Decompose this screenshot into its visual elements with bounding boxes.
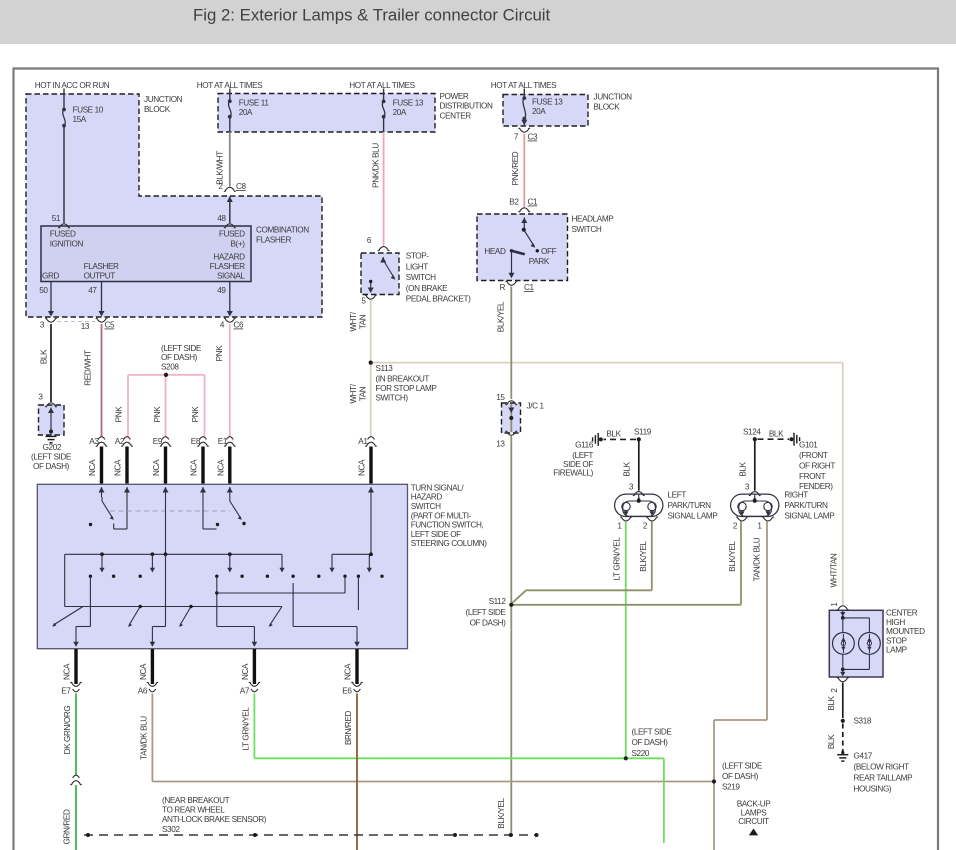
svg-text:PNK: PNK bbox=[115, 406, 124, 423]
svg-text:(IN BREAKOUT: (IN BREAKOUT bbox=[376, 375, 430, 384]
svg-text:15A: 15A bbox=[73, 115, 87, 124]
svg-text:FIREWALL): FIREWALL) bbox=[553, 469, 593, 478]
svg-text:7: 7 bbox=[514, 133, 519, 142]
svg-text:FUSED: FUSED bbox=[219, 230, 245, 239]
svg-text:(LEFT SIDE: (LEFT SIDE bbox=[161, 344, 202, 353]
svg-text:LAMP: LAMP bbox=[886, 646, 908, 655]
svg-text:C1: C1 bbox=[524, 283, 535, 292]
svg-text:OF DASH): OF DASH) bbox=[161, 353, 198, 362]
svg-text:WHT/: WHT/ bbox=[349, 311, 358, 331]
svg-text:OF DASH): OF DASH) bbox=[470, 618, 507, 627]
svg-text:A7: A7 bbox=[240, 687, 250, 696]
svg-text:PARK: PARK bbox=[529, 257, 550, 266]
svg-text:SIGNAL LAMP: SIGNAL LAMP bbox=[784, 512, 835, 521]
svg-text:51: 51 bbox=[52, 214, 61, 223]
svg-text:FLASHER: FLASHER bbox=[210, 262, 245, 271]
svg-text:FOR STOP LAMP: FOR STOP LAMP bbox=[376, 384, 438, 393]
svg-text:PNK/RED: PNK/RED bbox=[511, 151, 520, 185]
svg-text:SIDE OF: SIDE OF bbox=[563, 460, 593, 469]
svg-text:NCA: NCA bbox=[114, 459, 123, 476]
svg-text:JUNCTION: JUNCTION bbox=[144, 95, 183, 104]
svg-text:JUNCTION: JUNCTION bbox=[594, 93, 633, 102]
svg-text:OF RIGHT: OF RIGHT bbox=[799, 461, 835, 470]
svg-text:S208: S208 bbox=[161, 363, 179, 372]
svg-text:(LEFT: (LEFT bbox=[572, 451, 593, 460]
svg-text:FUSE 13: FUSE 13 bbox=[532, 98, 563, 107]
svg-text:S220: S220 bbox=[632, 749, 650, 758]
svg-text:BLOCK: BLOCK bbox=[594, 103, 621, 112]
svg-text:TAN: TAN bbox=[359, 314, 368, 329]
svg-text:(LEFT SIDE: (LEFT SIDE bbox=[466, 608, 507, 617]
svg-text:2: 2 bbox=[643, 522, 648, 531]
svg-text:S219: S219 bbox=[722, 783, 740, 792]
svg-text:IGNITION: IGNITION bbox=[50, 239, 84, 248]
svg-text:PARK/TURN: PARK/TURN bbox=[668, 501, 712, 510]
svg-text:R: R bbox=[499, 283, 505, 292]
svg-text:13: 13 bbox=[81, 322, 90, 331]
svg-text:FUNCTION SWITCH,: FUNCTION SWITCH, bbox=[411, 521, 484, 530]
svg-text:J/C 1: J/C 1 bbox=[527, 402, 545, 411]
svg-text:15: 15 bbox=[496, 393, 505, 402]
svg-text:S318: S318 bbox=[854, 717, 872, 726]
svg-text:GRD: GRD bbox=[42, 272, 59, 281]
svg-text:HOUSING): HOUSING) bbox=[854, 785, 892, 794]
svg-text:WHT/TAN: WHT/TAN bbox=[830, 553, 839, 587]
svg-text:NCA: NCA bbox=[63, 663, 72, 680]
svg-text:C5: C5 bbox=[105, 321, 116, 330]
svg-text:SWITCH: SWITCH bbox=[406, 273, 436, 282]
svg-text:BRN/RED: BRN/RED bbox=[344, 710, 353, 745]
svg-text:2: 2 bbox=[830, 688, 839, 693]
svg-text:A6: A6 bbox=[138, 687, 148, 696]
svg-text:SIGNAL LAMP: SIGNAL LAMP bbox=[668, 512, 719, 521]
svg-text:TAN/DK BLU: TAN/DK BLU bbox=[753, 537, 762, 581]
svg-text:NCA: NCA bbox=[152, 459, 161, 476]
svg-text:G417: G417 bbox=[854, 752, 873, 761]
svg-text:E9: E9 bbox=[153, 437, 163, 446]
svg-text:(NEAR BREAKOUT: (NEAR BREAKOUT bbox=[162, 796, 230, 805]
svg-text:BLK: BLK bbox=[606, 430, 621, 439]
svg-text:SIGNAL: SIGNAL bbox=[217, 272, 245, 281]
svg-text:CIRCUIT: CIRCUIT bbox=[738, 817, 769, 826]
svg-text:MOUNTED: MOUNTED bbox=[886, 627, 925, 636]
svg-text:1: 1 bbox=[617, 522, 622, 531]
svg-text:E8: E8 bbox=[191, 437, 201, 446]
svg-text:5: 5 bbox=[361, 297, 366, 306]
svg-text:A2: A2 bbox=[115, 437, 125, 446]
svg-text:POWER: POWER bbox=[440, 92, 469, 101]
svg-text:2: 2 bbox=[733, 522, 738, 531]
svg-text:3: 3 bbox=[40, 321, 45, 330]
svg-text:HIGH: HIGH bbox=[886, 618, 905, 627]
svg-text:A3: A3 bbox=[89, 437, 99, 446]
svg-text:NCA: NCA bbox=[88, 459, 97, 476]
svg-text:LEFT: LEFT bbox=[668, 491, 687, 500]
svg-text:NCA: NCA bbox=[216, 459, 225, 476]
svg-text:(LEFT SIDE: (LEFT SIDE bbox=[31, 453, 72, 462]
svg-text:S119: S119 bbox=[634, 428, 652, 437]
svg-text:CENTER: CENTER bbox=[440, 111, 472, 120]
svg-text:BLK: BLK bbox=[769, 430, 784, 439]
svg-text:RIGHT: RIGHT bbox=[784, 491, 808, 500]
svg-text:NCA: NCA bbox=[139, 663, 148, 680]
svg-text:4: 4 bbox=[220, 321, 225, 330]
svg-text:DK GRN/ORG: DK GRN/ORG bbox=[63, 706, 72, 755]
svg-text:C6: C6 bbox=[234, 321, 245, 330]
svg-text:FLASHER: FLASHER bbox=[256, 236, 291, 245]
svg-text:TAN/DK BLU: TAN/DK BLU bbox=[140, 716, 149, 760]
svg-text:TURN SIGNAL/: TURN SIGNAL/ bbox=[411, 483, 465, 492]
svg-text:13: 13 bbox=[496, 440, 505, 449]
svg-text:WHT/: WHT/ bbox=[349, 383, 358, 403]
svg-text:LEFT SIDE OF: LEFT SIDE OF bbox=[411, 530, 461, 539]
svg-text:LT GRN/YEL: LT GRN/YEL bbox=[613, 537, 622, 581]
svg-text:FUSE 13: FUSE 13 bbox=[393, 99, 424, 108]
svg-text:BLK/WHT: BLK/WHT bbox=[216, 151, 225, 185]
svg-text:CENTER: CENTER bbox=[886, 609, 918, 618]
svg-text:1: 1 bbox=[757, 522, 762, 531]
svg-text:HOT IN ACC OR RUN: HOT IN ACC OR RUN bbox=[35, 81, 110, 90]
svg-text:PEDAL BRACKET): PEDAL BRACKET) bbox=[406, 295, 471, 304]
svg-text:STOP-: STOP- bbox=[406, 252, 430, 261]
svg-text:STOP: STOP bbox=[886, 636, 907, 645]
svg-text:BLK/YEL: BLK/YEL bbox=[497, 797, 506, 828]
svg-text:48: 48 bbox=[217, 214, 226, 223]
svg-text:49: 49 bbox=[217, 286, 226, 295]
svg-text:(PART OF MULTI-: (PART OF MULTI- bbox=[411, 511, 472, 520]
svg-text:COMBINATION: COMBINATION bbox=[256, 226, 309, 235]
svg-text:GRN/RED: GRN/RED bbox=[63, 809, 72, 844]
svg-text:E7: E7 bbox=[61, 687, 71, 696]
svg-text:S112: S112 bbox=[489, 597, 507, 606]
svg-text:OF DASH): OF DASH) bbox=[33, 462, 70, 471]
svg-text:20A: 20A bbox=[393, 108, 407, 117]
svg-text:PNK: PNK bbox=[215, 345, 224, 362]
svg-text:(FRONT: (FRONT bbox=[799, 451, 828, 460]
svg-text:FUSE 11: FUSE 11 bbox=[239, 99, 270, 108]
svg-text:STEERING COLUMN): STEERING COLUMN) bbox=[411, 539, 488, 548]
svg-text:C8: C8 bbox=[236, 182, 247, 191]
svg-text:HEADLAMP: HEADLAMP bbox=[572, 215, 615, 224]
svg-text:BLK: BLK bbox=[623, 461, 632, 476]
svg-text:6: 6 bbox=[367, 236, 372, 245]
svg-text:3: 3 bbox=[629, 483, 634, 492]
svg-text:OF DASH): OF DASH) bbox=[632, 738, 669, 747]
svg-text:NCA: NCA bbox=[190, 459, 199, 476]
svg-text:LIGHT: LIGHT bbox=[406, 262, 429, 271]
svg-text:REAR TAILLAMP: REAR TAILLAMP bbox=[854, 774, 914, 783]
svg-text:C1: C1 bbox=[528, 198, 539, 207]
svg-text:LT GRN/YEL: LT GRN/YEL bbox=[242, 707, 251, 751]
svg-text:47: 47 bbox=[88, 286, 97, 295]
svg-text:20A: 20A bbox=[532, 107, 546, 116]
svg-text:FUSE 10: FUSE 10 bbox=[73, 106, 104, 115]
svg-text:3: 3 bbox=[745, 483, 750, 492]
svg-text:(ON BRAKE: (ON BRAKE bbox=[406, 284, 448, 293]
svg-text:RED/WHT: RED/WHT bbox=[84, 350, 93, 386]
svg-text:(LEFT SIDE: (LEFT SIDE bbox=[632, 728, 673, 737]
svg-text:E6: E6 bbox=[342, 687, 352, 696]
svg-text:SWITCH: SWITCH bbox=[411, 502, 441, 511]
svg-text:B(+): B(+) bbox=[230, 239, 245, 248]
svg-text:FUSED: FUSED bbox=[50, 230, 76, 239]
svg-text:ANTI-LOCK BRAKE SENSOR): ANTI-LOCK BRAKE SENSOR) bbox=[162, 815, 267, 824]
svg-text:PARK/TURN: PARK/TURN bbox=[784, 501, 828, 510]
svg-text:G116: G116 bbox=[575, 441, 594, 450]
svg-text:BLOCK: BLOCK bbox=[144, 105, 171, 114]
svg-text:LAMPS: LAMPS bbox=[741, 808, 768, 817]
svg-text:TO REAR WHEEL: TO REAR WHEEL bbox=[162, 806, 225, 815]
svg-text:BACK-UP: BACK-UP bbox=[737, 800, 772, 809]
svg-text:S302: S302 bbox=[162, 825, 180, 834]
svg-text:OF DASH): OF DASH) bbox=[722, 772, 759, 781]
svg-text:A1: A1 bbox=[358, 437, 368, 446]
svg-text:NCA: NCA bbox=[241, 663, 250, 680]
svg-text:PNK: PNK bbox=[153, 406, 162, 423]
svg-text:SWITCH: SWITCH bbox=[572, 225, 602, 234]
svg-text:50: 50 bbox=[39, 286, 48, 295]
svg-text:Fig 2: Exterior Lamps & Traile: Fig 2: Exterior Lamps & Trailer connecto… bbox=[193, 6, 551, 25]
svg-text:TAN: TAN bbox=[359, 386, 368, 401]
svg-text:HOT AT ALL TIMES: HOT AT ALL TIMES bbox=[197, 81, 263, 90]
svg-text:SWITCH): SWITCH) bbox=[376, 394, 409, 403]
svg-text:S124: S124 bbox=[743, 428, 761, 437]
svg-text:BLK/YEL: BLK/YEL bbox=[497, 301, 506, 332]
svg-text:OUTPUT: OUTPUT bbox=[84, 272, 116, 281]
svg-text:BLK: BLK bbox=[739, 461, 748, 476]
svg-text:G101: G101 bbox=[799, 441, 818, 450]
svg-text:1: 1 bbox=[830, 602, 839, 607]
svg-text:NCA: NCA bbox=[344, 663, 353, 680]
svg-text:BLK: BLK bbox=[827, 734, 836, 749]
svg-text:(LEFT SIDE: (LEFT SIDE bbox=[722, 762, 763, 771]
svg-text:BLK/YEL: BLK/YEL bbox=[728, 540, 737, 571]
svg-text:E1: E1 bbox=[218, 437, 228, 446]
svg-text:BLK/YEL: BLK/YEL bbox=[639, 540, 648, 571]
svg-text:HOT AT ALL TIMES: HOT AT ALL TIMES bbox=[491, 81, 557, 90]
svg-text:3: 3 bbox=[38, 393, 43, 402]
svg-text:20A: 20A bbox=[239, 108, 253, 117]
svg-text:PNK/DK BLU: PNK/DK BLU bbox=[372, 143, 381, 188]
svg-text:FRONT: FRONT bbox=[799, 472, 826, 481]
svg-text:PNK: PNK bbox=[191, 406, 200, 423]
svg-text:S113: S113 bbox=[376, 364, 394, 373]
svg-text:OFF: OFF bbox=[541, 247, 557, 256]
svg-text:HOT AT ALL TIMES: HOT AT ALL TIMES bbox=[349, 81, 415, 90]
svg-text:BLK: BLK bbox=[40, 349, 49, 364]
svg-text:BLK: BLK bbox=[827, 695, 836, 710]
svg-text:HEAD: HEAD bbox=[484, 247, 506, 256]
svg-text:C3: C3 bbox=[528, 133, 539, 142]
svg-text:G202: G202 bbox=[43, 443, 62, 452]
svg-text:B2: B2 bbox=[509, 198, 519, 207]
svg-text:HAZARD: HAZARD bbox=[213, 253, 245, 262]
svg-text:(BELOW RIGHT: (BELOW RIGHT bbox=[854, 763, 910, 772]
svg-text:HAZARD: HAZARD bbox=[411, 493, 443, 502]
svg-text:FLASHER: FLASHER bbox=[84, 262, 119, 271]
svg-text:NCA: NCA bbox=[358, 459, 367, 476]
svg-text:DISTRIBUTION: DISTRIBUTION bbox=[440, 102, 493, 111]
